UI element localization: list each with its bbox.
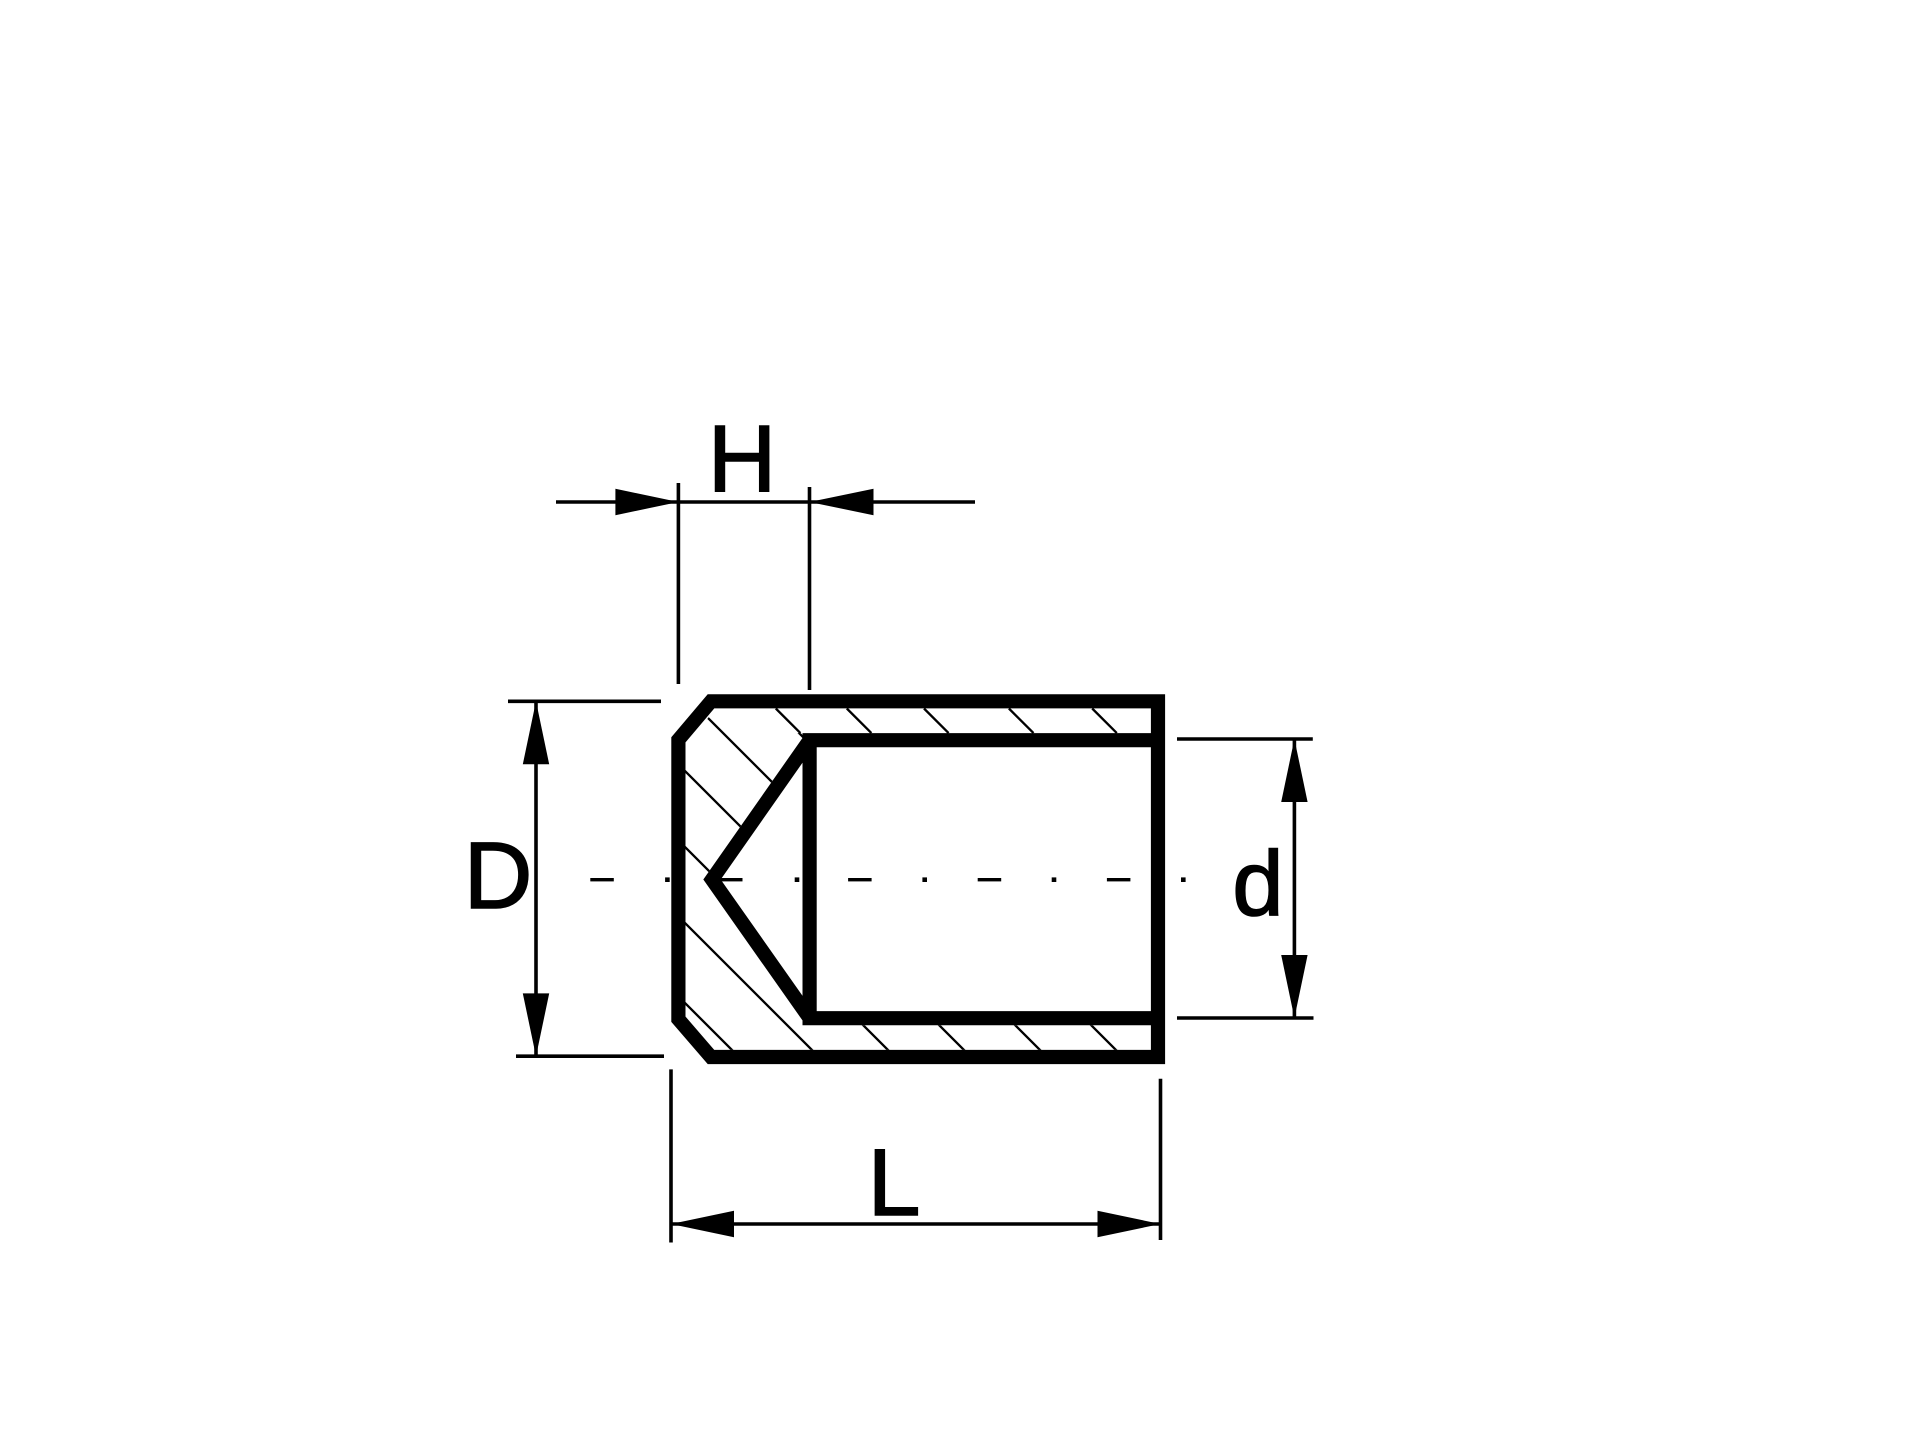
svg-text:d: d (1232, 833, 1283, 935)
svg-text:D: D (464, 823, 533, 929)
svg-text:H: H (708, 406, 777, 512)
svg-text:L: L (868, 1130, 921, 1236)
